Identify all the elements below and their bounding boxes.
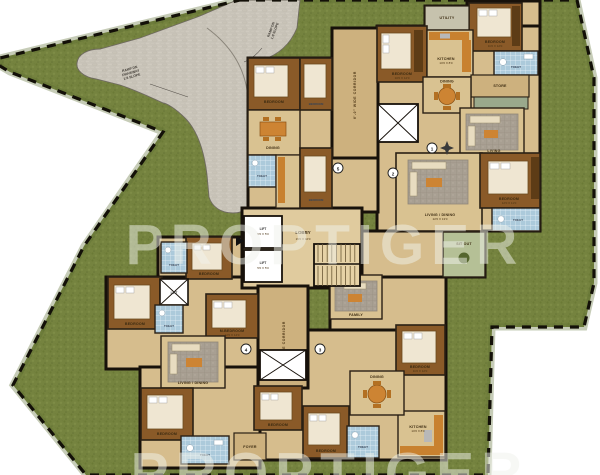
bed-icon (114, 285, 150, 319)
bed-icon (254, 65, 288, 97)
room-utility: UTILITY (425, 6, 469, 30)
room-dining: DINING (248, 110, 300, 155)
watermark-text: PROPTIGER (126, 213, 525, 277)
room-label: FAMILY (349, 313, 363, 317)
room-label: DINING (440, 80, 454, 84)
chair (275, 117, 281, 121)
bed-icon (304, 156, 326, 192)
lift-shaft: LIFT (160, 279, 188, 305)
bed-icon (304, 64, 326, 98)
chair (387, 390, 391, 398)
room-label: BEDROOM (264, 100, 284, 104)
unit-5-badge: 5 (333, 163, 343, 173)
room-toilet: TOILET (494, 51, 538, 75)
room-bedroom: BEDROOM 10'0 X 12'0 (377, 26, 427, 82)
room-label: BEDROOM (157, 432, 177, 436)
unit-number: 5 (337, 167, 340, 172)
chair (443, 84, 451, 88)
kitchen-counter (278, 157, 285, 203)
room-label: BEDROOM (125, 322, 145, 326)
room-bedroom: BEDROOM 11'0 X 12'0 (396, 325, 445, 375)
wc-icon (159, 310, 165, 316)
chair (373, 381, 381, 385)
chair (443, 106, 451, 110)
coffee-table (348, 294, 362, 302)
room-label: STORE (493, 84, 507, 88)
unit-2-badge: 2 (388, 168, 398, 178)
wardrobe (531, 157, 539, 199)
chair (363, 390, 367, 398)
room-dims: 12'0 X 11'0 (502, 201, 517, 205)
watermark-text-bottom: PROPTIGER (131, 441, 530, 475)
dining-table (368, 385, 386, 403)
wc-icon (252, 160, 258, 166)
room-label: BEDROOM (309, 102, 324, 106)
sofa (412, 162, 446, 169)
room-dims: 11'0 X 12'0 (488, 44, 503, 48)
room-label: TOILET (164, 324, 174, 328)
sink-icon (524, 54, 533, 59)
unit-number: 3 (319, 348, 322, 353)
room-master-bedroom: M.BEDROOM 12'0 X 14'0 (206, 294, 258, 338)
room-label: BEDROOM (309, 198, 324, 202)
sofa (470, 116, 500, 123)
utility-strip (474, 97, 528, 109)
chair (263, 137, 269, 141)
sofa (468, 126, 475, 146)
unit-4-badge: 4 (241, 344, 251, 354)
corridor-upper-label: 6'-0" WIDE CORRIDOR (353, 71, 357, 119)
duct-shaft (260, 350, 306, 380)
room-store: STORE (471, 75, 529, 97)
room-bedroom: BEDROOM 11'0 X 12'0 (469, 3, 522, 51)
unit-number: 1 (431, 147, 434, 152)
bed-icon (477, 8, 511, 37)
site-plan-svg: RAMP DN DRIVEWAY 1:8 SLOPE RAMP DN 1:8 S… (0, 0, 600, 475)
wardrobe (414, 30, 423, 72)
bed-icon (381, 33, 411, 69)
wardrobe (512, 6, 520, 46)
room-living: LIVING (460, 108, 524, 156)
bed-icon (147, 395, 183, 429)
coffee-table (186, 358, 202, 367)
room-dims: 10'0 X 12'0 (395, 76, 410, 80)
lift-label: LIFT (171, 291, 178, 295)
duct-shaft (378, 104, 418, 142)
room-bedroom: BEDROOM (108, 277, 162, 329)
wc-icon (352, 432, 358, 438)
room-dims: 12'0 X 14'0 (225, 333, 240, 337)
coffee-table (426, 178, 442, 187)
room-dims: 10'0 X 8'0 (411, 429, 424, 433)
room-toilet: TOILET (248, 155, 276, 187)
chair (275, 137, 281, 141)
wc-icon (500, 59, 507, 66)
room-dining: DINING (350, 371, 404, 415)
sofa (172, 344, 200, 351)
floor-plan-image: RAMP DN DRIVEWAY 1:8 SLOPE RAMP DN 1:8 S… (0, 0, 600, 475)
bed-icon (212, 300, 246, 328)
bed-icon (488, 161, 528, 194)
room-bedroom: BEDROOM (254, 386, 302, 430)
unit-number: 4 (245, 348, 248, 353)
room-dims: 11'0 X 12'0 (413, 369, 428, 373)
unit-1-badge: 1 (427, 143, 437, 153)
sofa (170, 354, 177, 374)
room-bedroom: BEDROOM (300, 58, 332, 110)
chair (263, 117, 269, 121)
room-bedroom: BEDROOM (141, 388, 193, 440)
chair (434, 92, 438, 100)
room-kitchen: KITCHEN 10'0 X 8'0 (427, 30, 473, 77)
room-label: LIVING / DINING (178, 381, 209, 385)
dining-table (439, 88, 456, 105)
room-label: DINING (266, 146, 280, 150)
room-label: BEDROOM (268, 423, 288, 427)
chair (373, 404, 381, 408)
bed-icon (402, 331, 436, 363)
kitchen-sink (440, 34, 450, 39)
room-label: TOILET (511, 65, 521, 69)
room-dims: 10'0 X 8'0 (439, 61, 452, 65)
sofa (410, 172, 417, 196)
room-bedroom: BEDROOM (300, 148, 332, 208)
room-living-dining: LIVING / DINING (161, 336, 225, 388)
coffee-table (484, 130, 498, 138)
chair (456, 92, 460, 100)
room-label: UTILITY (440, 16, 455, 20)
room-label: TOILET (257, 174, 267, 178)
dining-table (260, 122, 286, 136)
room-label: DINING (370, 375, 384, 379)
room-bedroom: BEDROOM 12'0 X 11'0 (480, 153, 540, 208)
kitchen-counter (462, 40, 471, 72)
bed-icon (260, 392, 292, 420)
room-bedroom: BEDROOM (248, 58, 300, 110)
unit-number: 2 (392, 172, 395, 177)
unit-3-badge: 3 (315, 344, 325, 354)
room-toilet: TOILET (155, 305, 183, 333)
